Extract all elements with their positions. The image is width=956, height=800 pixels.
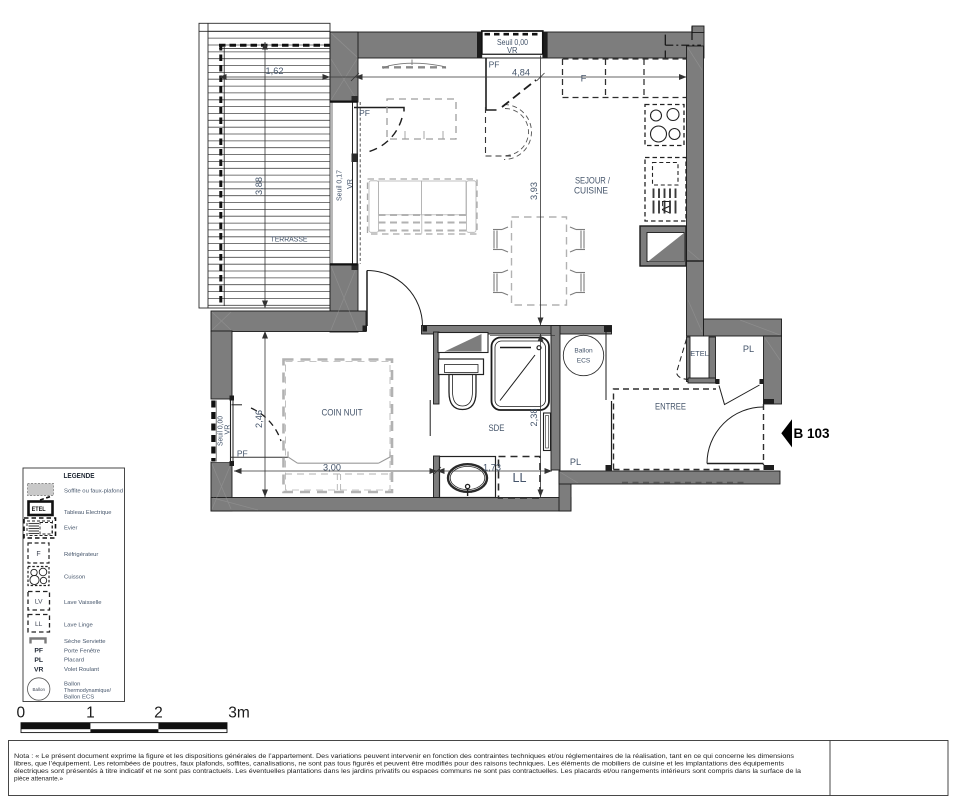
svg-text:PF: PF	[489, 60, 500, 70]
svg-text:ETEL: ETEL	[32, 507, 46, 513]
svg-text:TERRASSE: TERRASSE	[271, 235, 308, 244]
svg-text:LV: LV	[35, 599, 43, 606]
svg-text:Lave Vaisselle: Lave Vaisselle	[64, 600, 102, 606]
svg-text:COIN NUIT: COIN NUIT	[322, 408, 363, 418]
svg-text:2: 2	[154, 705, 163, 722]
svg-text:Soffite ou faux-plafond: Soffite ou faux-plafond	[64, 489, 123, 495]
svg-text:Evier: Evier	[64, 526, 77, 532]
svg-text:Nota : « Le présent document e: Nota : « Le présent document exprime la …	[14, 753, 794, 760]
svg-text:pièce attenante.»: pièce attenante.»	[14, 775, 63, 782]
svg-text:PL: PL	[743, 344, 754, 354]
svg-text:3,00: 3,00	[323, 462, 341, 472]
svg-text:1,62: 1,62	[266, 66, 284, 76]
svg-text:ECS: ECS	[577, 358, 591, 365]
svg-text:VR: VR	[34, 667, 44, 674]
svg-text:Lave Linge: Lave Linge	[64, 623, 94, 629]
svg-text:Cuisson: Cuisson	[64, 575, 85, 581]
svg-text:CUISINE: CUISINE	[574, 186, 608, 196]
svg-text:PF: PF	[34, 648, 43, 655]
svg-text:1,73: 1,73	[483, 462, 501, 472]
svg-text:LEGENDE: LEGENDE	[64, 473, 95, 480]
svg-text:PL: PL	[34, 657, 43, 664]
svg-text:0: 0	[16, 705, 25, 722]
svg-text:libres, que l’équipement. Les: libres, que l’équipement. Les retombées …	[14, 760, 784, 767]
svg-text:Tableau Electrique: Tableau Electrique	[64, 510, 112, 516]
svg-text:3,93: 3,93	[529, 182, 539, 200]
svg-text:Seuil 0,17: Seuil 0,17	[335, 170, 344, 201]
svg-text:ENTREE: ENTREE	[655, 402, 686, 412]
svg-text:Seuil 0,00: Seuil 0,00	[218, 416, 225, 446]
svg-text:PF: PF	[359, 108, 370, 118]
svg-text:PL: PL	[570, 457, 581, 467]
svg-text:F: F	[581, 74, 587, 85]
svg-text:Thermodynamique/: Thermodynamique/	[64, 688, 111, 694]
svg-text:4,84: 4,84	[512, 68, 530, 78]
svg-text:ETEL: ETEL	[690, 349, 708, 358]
svg-text:Ballon: Ballon	[64, 682, 80, 688]
svg-text:Sèche Serviette: Sèche Serviette	[64, 639, 106, 645]
svg-text:F: F	[36, 551, 40, 558]
svg-text:LL: LL	[513, 471, 527, 485]
svg-text:2,38: 2,38	[529, 409, 539, 427]
svg-text:LL: LL	[35, 621, 43, 628]
svg-text:B 103: B 103	[794, 426, 831, 441]
svg-text:SDE: SDE	[489, 423, 505, 433]
svg-text:LV: LV	[659, 200, 671, 214]
svg-text:3m: 3m	[228, 705, 250, 722]
svg-text:Ballon: Ballon	[574, 348, 593, 355]
svg-text:3,88: 3,88	[254, 177, 264, 195]
svg-text:PF: PF	[237, 448, 248, 458]
svg-text:Placard: Placard	[64, 658, 84, 664]
svg-text:VR: VR	[225, 425, 232, 435]
svg-text:1: 1	[86, 705, 95, 722]
svg-text:Volet Roulant: Volet Roulant	[64, 667, 99, 673]
svg-text:2,46: 2,46	[254, 410, 264, 428]
svg-text:VR: VR	[507, 46, 518, 55]
svg-text:électriques sont présentés à t: électriques sont présentés à titre indic…	[14, 768, 801, 775]
svg-text:SEJOUR /: SEJOUR /	[575, 176, 610, 186]
svg-text:Réfrigérateur: Réfrigérateur	[64, 552, 98, 558]
svg-text:Porte Fenêtre: Porte Fenêtre	[64, 648, 101, 654]
svg-text:Ballon: Ballon	[32, 687, 45, 692]
svg-text:Ballon ECS: Ballon ECS	[64, 694, 94, 700]
svg-text:VR: VR	[345, 179, 354, 189]
